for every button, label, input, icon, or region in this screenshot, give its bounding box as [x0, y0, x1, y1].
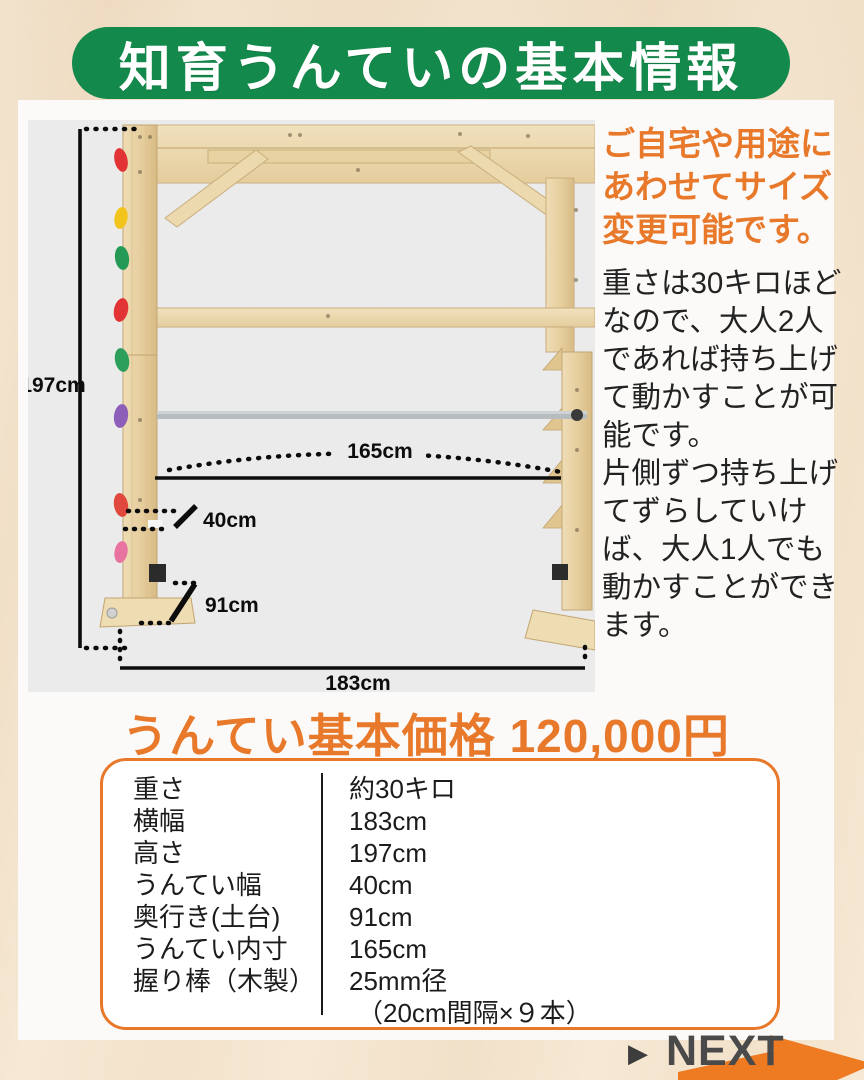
weight-paragraph-1: 重さは30キロほどなので、大人2人であれば持ち上げて動かすことが可能です。: [602, 265, 844, 455]
info-column: ご自宅や用途にあわせてサイズ変更可能です。 重さは30キロほどなので、大人2人で…: [602, 122, 844, 645]
spec-value: 40cm: [321, 869, 413, 901]
price-heading: うんてい基本価格 120,000円: [18, 700, 834, 766]
dim-untei-width-label: 40cm: [203, 509, 257, 532]
size-note-highlight: ご自宅や用途にあわせてサイズ変更可能です。: [602, 122, 844, 251]
spec-label: 重さ: [133, 773, 321, 805]
product-photo: 197cm 165cm 40cm 91cm 183cm: [28, 120, 595, 692]
table-row: 奥行き(土台) 91cm: [133, 901, 777, 933]
next-triangle-icon: ▶: [628, 1040, 648, 1066]
spec-label: [133, 997, 321, 1029]
dim-height-label: 197cm: [28, 374, 86, 397]
table-row: 高さ 197cm: [133, 837, 777, 869]
spec-value: 91cm: [321, 901, 413, 933]
spec-label: うんてい幅: [133, 869, 321, 901]
spec-label: 握り棒（木製）: [133, 965, 321, 997]
spec-value: 183cm: [321, 805, 427, 837]
next-button[interactable]: ▶ NEXT: [614, 1028, 864, 1080]
page-title: 知育うんていの基本情報: [119, 26, 743, 101]
spec-value: 197cm: [321, 837, 427, 869]
table-row: 横幅 183cm: [133, 805, 777, 837]
spec-label: 奥行き(土台): [133, 901, 321, 933]
product-photo-svg: 197cm 165cm 40cm 91cm 183cm: [28, 120, 595, 692]
spec-value: 約30キロ: [321, 773, 456, 805]
next-label: NEXT: [666, 1028, 785, 1075]
dim-depth-label: 91cm: [205, 594, 259, 617]
dim-inner-width-label: 165cm: [347, 440, 412, 463]
spec-label: 横幅: [133, 805, 321, 837]
table-row: うんてい幅 40cm: [133, 869, 777, 901]
dim-total-width-label: 183cm: [325, 672, 390, 692]
table-row: 重さ 約30キロ: [133, 773, 777, 805]
spec-label: うんてい内寸: [133, 933, 321, 965]
spec-label: 高さ: [133, 837, 321, 869]
weight-paragraph-2: 片側ずつ持ち上げてずらしていけば、大人1人でも動かすことができます。: [602, 455, 844, 645]
spec-value: 25mm径: [321, 965, 447, 997]
title-banner: 知育うんていの基本情報: [72, 27, 790, 99]
weight-description: 重さは30キロほどなので、大人2人であれば持ち上げて動かすことが可能です。 片側…: [602, 265, 844, 645]
table-row: （20cm間隔×９本）: [133, 997, 777, 1029]
spec-value-continued: （20cm間隔×９本）: [321, 997, 592, 1029]
table-row: うんてい内寸 165cm: [133, 933, 777, 965]
spec-value: 165cm: [321, 933, 427, 965]
table-row: 握り棒（木製） 25mm径: [133, 965, 777, 997]
spec-table-divider: [321, 773, 323, 1015]
spec-table: 重さ 約30キロ 横幅 183cm 高さ 197cm うんてい幅 40cm 奥行…: [100, 758, 780, 1030]
content-card: 197cm 165cm 40cm 91cm 183cm ご自宅や用途にあわせてサ…: [18, 100, 834, 1040]
